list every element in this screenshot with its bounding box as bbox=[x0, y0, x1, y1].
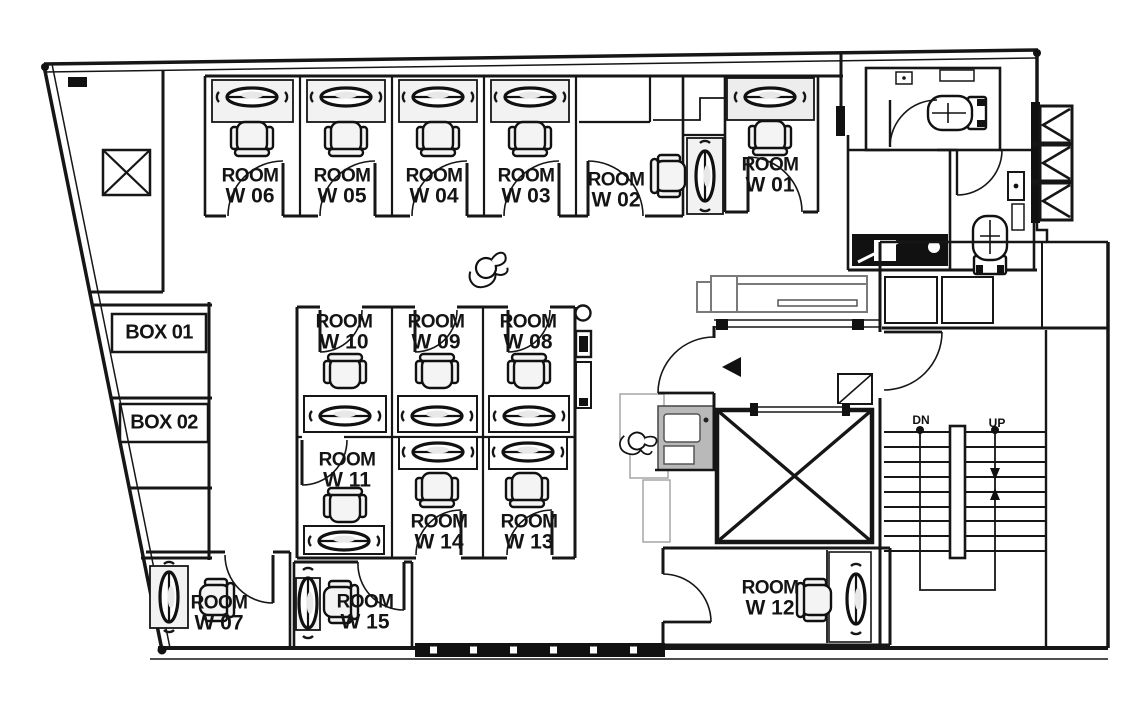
door-swing-icon bbox=[884, 332, 942, 390]
room-label-w15: ROOMW 15 bbox=[337, 593, 394, 634]
office-chair-icon bbox=[509, 122, 551, 156]
stairs-up-label: UP bbox=[989, 416, 1006, 430]
louver-vents bbox=[1031, 102, 1072, 223]
office-chair-icon bbox=[749, 121, 791, 155]
room-label-w03: ROOMW 03 bbox=[498, 167, 555, 208]
elevator-x-icon bbox=[717, 410, 872, 542]
office-chair-icon bbox=[506, 473, 548, 507]
desk-w06 bbox=[212, 80, 293, 122]
door-swing-icon bbox=[658, 337, 714, 393]
desk-w04 bbox=[399, 80, 477, 122]
room-label-w04: ROOMW 04 bbox=[406, 167, 463, 208]
office-chair-icon bbox=[325, 122, 367, 156]
toilet-icon bbox=[928, 96, 986, 130]
elevator-call-marker bbox=[722, 357, 741, 377]
room-label-w05: ROOMW 05 bbox=[314, 167, 371, 208]
office-chair-icon bbox=[508, 354, 550, 388]
room-label-w13: ROOMW 13 bbox=[501, 513, 558, 554]
kitchenette bbox=[618, 394, 717, 542]
desk-w14 bbox=[399, 437, 477, 469]
corner-dot bbox=[1033, 49, 1041, 57]
box-01-label: BOX 01 bbox=[125, 322, 193, 345]
room-label-w12: ROOMW 12 bbox=[742, 579, 799, 620]
stairwell bbox=[880, 242, 1108, 648]
wall-marker bbox=[68, 77, 87, 87]
room-label-w14: ROOMW 14 bbox=[411, 513, 468, 554]
door-swing-icon bbox=[663, 574, 711, 622]
shaft-closet bbox=[885, 277, 937, 323]
door-jamb bbox=[716, 319, 728, 330]
fire-extinguisher-icon bbox=[576, 306, 591, 321]
office-chair-icon bbox=[797, 579, 831, 621]
toilet-icon bbox=[973, 216, 1007, 274]
stairs-icon bbox=[884, 426, 1046, 590]
office-chair-icon bbox=[324, 354, 366, 388]
door-swing-icon bbox=[957, 150, 1002, 195]
sofa-icon bbox=[697, 276, 867, 312]
desk-w11 bbox=[304, 526, 384, 554]
service-room bbox=[90, 70, 163, 292]
desk-w08 bbox=[489, 396, 569, 432]
desk-w01 bbox=[727, 78, 814, 120]
desk-w12 bbox=[829, 552, 871, 642]
person-top-view-icon bbox=[465, 251, 513, 291]
elevator bbox=[717, 403, 872, 542]
desk-w15 bbox=[296, 568, 320, 638]
corner-dot bbox=[41, 63, 49, 71]
room-label-w09: ROOMW 09 bbox=[408, 313, 465, 354]
desk-w09 bbox=[398, 396, 477, 432]
shaft-x-icon bbox=[103, 150, 150, 195]
office-chair-icon bbox=[416, 473, 458, 507]
room-label-w08: ROOMW 08 bbox=[500, 313, 557, 354]
floor-plan-drawing bbox=[0, 0, 1147, 713]
room-label-w02: ROOMW 02 bbox=[588, 171, 645, 212]
person-top-view-icon bbox=[618, 429, 658, 460]
desk-w10 bbox=[304, 396, 386, 432]
stairs-down-label: DN bbox=[912, 413, 929, 427]
office-chair-icon bbox=[416, 354, 458, 388]
room-label-w01: ROOMW 01 bbox=[742, 156, 799, 197]
box-02-label: BOX 02 bbox=[130, 412, 198, 435]
room-label-w10: ROOMW 10 bbox=[316, 313, 373, 354]
shelf bbox=[940, 70, 974, 81]
kitchen-counter-icon bbox=[852, 234, 948, 266]
room-label-w07: ROOMW 07 bbox=[191, 594, 248, 635]
office-chair-icon bbox=[417, 122, 459, 156]
desk-w03 bbox=[491, 80, 569, 122]
door-jamb bbox=[836, 106, 845, 136]
desk-w05 bbox=[307, 80, 385, 122]
office-chair-icon bbox=[324, 488, 366, 522]
desk-w13 bbox=[489, 437, 567, 469]
room-label-w11: ROOMW 11 bbox=[319, 451, 376, 492]
door-jamb bbox=[852, 319, 864, 330]
room-label-w06: ROOMW 06 bbox=[222, 167, 279, 208]
corner-dot bbox=[158, 646, 167, 655]
floor-plan: ROOMW 06 ROOMW 05 ROOMW 04 ROOMW 03 ROOM… bbox=[0, 0, 1147, 713]
desk-w02-alcove bbox=[687, 138, 723, 214]
office-chair-icon bbox=[651, 155, 685, 197]
window-band bbox=[415, 643, 665, 657]
desk-w07 bbox=[150, 562, 188, 632]
shaft-closet bbox=[942, 277, 993, 323]
office-chair-icon bbox=[231, 122, 273, 156]
